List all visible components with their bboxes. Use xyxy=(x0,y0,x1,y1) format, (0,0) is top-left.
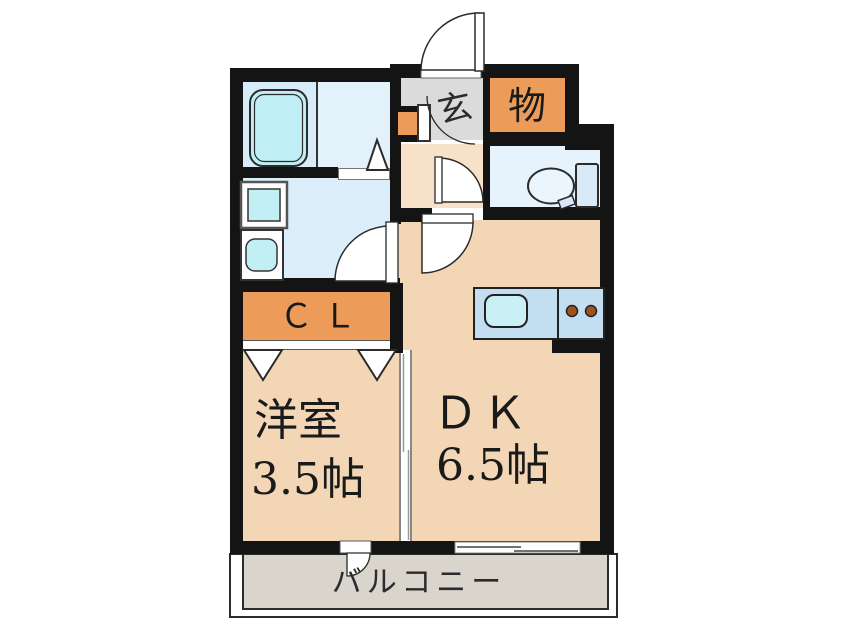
bathtub-icon xyxy=(250,90,307,166)
room-sliding-door-icon xyxy=(404,354,409,540)
toilet-icon xyxy=(528,164,598,209)
washing-machine-icon xyxy=(241,182,287,228)
vanity-sink-icon xyxy=(241,230,283,280)
stove-burners-icon xyxy=(567,306,597,317)
dk-door-swing-icon xyxy=(422,222,473,273)
folding-door-triangle-icon xyxy=(367,140,388,170)
balcony-door-leaf-icon xyxy=(340,541,371,553)
washroom-door-leaf-icon xyxy=(386,222,398,283)
storage-label: 物 xyxy=(508,87,546,125)
entry-door-swing-icon xyxy=(421,13,479,70)
sliding-window-icon xyxy=(455,542,580,553)
dk-label: ＤＫ xyxy=(433,391,531,436)
closet-door-triangle-icon xyxy=(244,350,282,380)
western-room-size-label: 3.5帖 xyxy=(251,458,365,502)
toilet-door-swing-icon xyxy=(439,158,483,202)
toilet-door-leaf-icon xyxy=(435,157,442,203)
dk-door-leaf-icon xyxy=(422,214,473,223)
floor-plan: 洋室 3.5帖 ＤＫ 6.5帖 Ｃ Ｌ 物 玄 バルコニー xyxy=(0,0,846,634)
closet-label: Ｃ Ｌ xyxy=(280,300,357,333)
entry-door-leaf-icon xyxy=(475,13,484,71)
dk-size-label: 6.5帖 xyxy=(436,444,550,488)
western-room-label: 洋室 xyxy=(254,399,342,443)
washroom-door-swing-icon xyxy=(335,226,390,281)
balcony-label: バルコニー xyxy=(332,568,506,598)
closet-door-triangle-icon xyxy=(358,350,396,380)
fixtures-and-doors-layer xyxy=(0,0,846,634)
entrance-label: 玄 xyxy=(435,89,475,129)
